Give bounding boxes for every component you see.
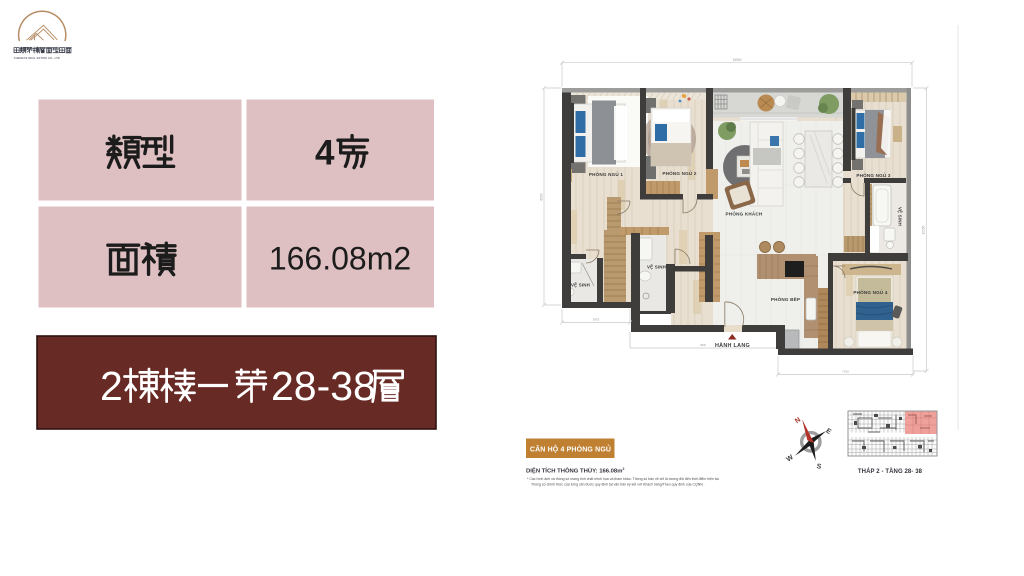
- svg-text:Thông số chính thức của từng c: Thông số chính thức của từng căn được qu…: [531, 482, 703, 486]
- svg-text:PHÒNG NGỦ 4: PHÒNG NGỦ 4: [853, 288, 888, 295]
- svg-text:PHÒNG BẾP: PHÒNG BẾP: [771, 295, 800, 302]
- svg-text:3875: 3875: [593, 318, 600, 322]
- svg-text:HÀNH LANG: HÀNH LANG: [715, 342, 750, 349]
- svg-text:CHENGYE REAL ESTATE CO., LTD: CHENGYE REAL ESTATE CO., LTD: [14, 56, 60, 60]
- svg-text:VỆ SINH: VỆ SINH: [571, 283, 590, 288]
- svg-text:28-38: 28-38: [271, 363, 376, 409]
- svg-text:PHÒNG NGỦ 1: PHÒNG NGỦ 1: [589, 170, 624, 177]
- svg-text:VỆ SINH: VỆ SINH: [647, 265, 666, 270]
- svg-text:CĂN HỘ 4 PHÒNG NGỦ: CĂN HỘ 4 PHÒNG NGỦ: [530, 445, 611, 454]
- svg-text:6950: 6950: [540, 193, 544, 200]
- svg-text:10150: 10150: [922, 225, 926, 234]
- svg-text:THÁP 2 - TẦNG 28- 38: THÁP 2 - TẦNG 28- 38: [858, 468, 923, 475]
- svg-text:VỆ SINH: VỆ SINH: [898, 207, 903, 226]
- svg-text:PHÒNG NGỦ 2: PHÒNG NGỦ 2: [662, 169, 697, 176]
- svg-text:* Các hình ảnh và thông số man: * Các hình ảnh và thông số mang tính chấ…: [527, 477, 720, 481]
- svg-text:7150: 7150: [842, 370, 849, 374]
- svg-text:600: 600: [700, 343, 705, 347]
- svg-text:DIỆN TÍCH THÔNG THỦY: 166.08m2: DIỆN TÍCH THÔNG THỦY: 166.08m2: [526, 467, 624, 475]
- svg-text:4: 4: [315, 134, 335, 173]
- svg-text:PHÒNG KHÁCH: PHÒNG KHÁCH: [726, 210, 763, 217]
- svg-text:15500: 15500: [733, 58, 742, 62]
- svg-text:PHÒNG NGỦ 3: PHÒNG NGỦ 3: [856, 171, 891, 178]
- svg-text:166.08m2: 166.08m2: [269, 241, 411, 277]
- svg-text:2: 2: [100, 363, 123, 409]
